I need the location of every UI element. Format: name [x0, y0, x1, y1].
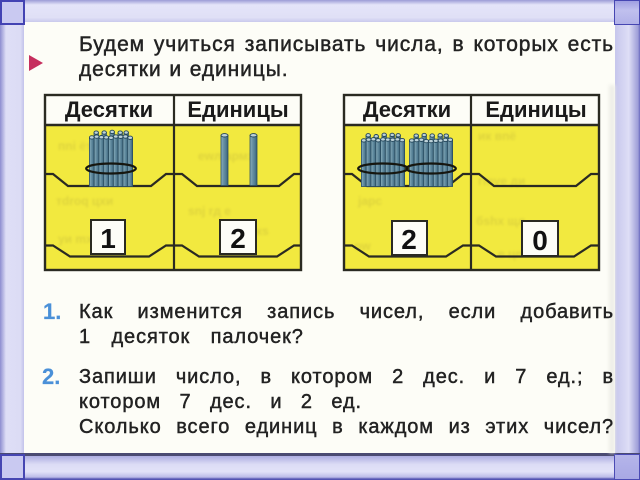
svg-text:2: 2	[230, 223, 246, 254]
svg-text:0: 0	[532, 225, 548, 256]
svg-text:Десятки: Десятки	[363, 97, 451, 122]
svg-text:уи mx: уи mx	[58, 232, 93, 246]
svg-text:Десятки: Десятки	[65, 97, 153, 122]
svg-text:Единицы: Единицы	[187, 97, 288, 122]
svg-text:e цn: e цn	[498, 247, 523, 261]
svg-text:Единицы: Единицы	[485, 97, 586, 122]
svg-text:2: 2	[401, 224, 417, 255]
svg-text:japc: japc	[357, 194, 382, 208]
svg-text:тdroq цхи: тdroq цхи	[56, 194, 113, 208]
svg-text:snj rд е: snj rд е	[188, 204, 231, 218]
svg-text:бshx щл: бshx щл	[476, 214, 525, 228]
svg-text:кs: кs	[256, 224, 269, 238]
svg-text:оw: оw	[354, 239, 371, 253]
svg-text:ик вnё: ик вnё	[478, 129, 516, 143]
svg-text:1: 1	[100, 223, 116, 254]
